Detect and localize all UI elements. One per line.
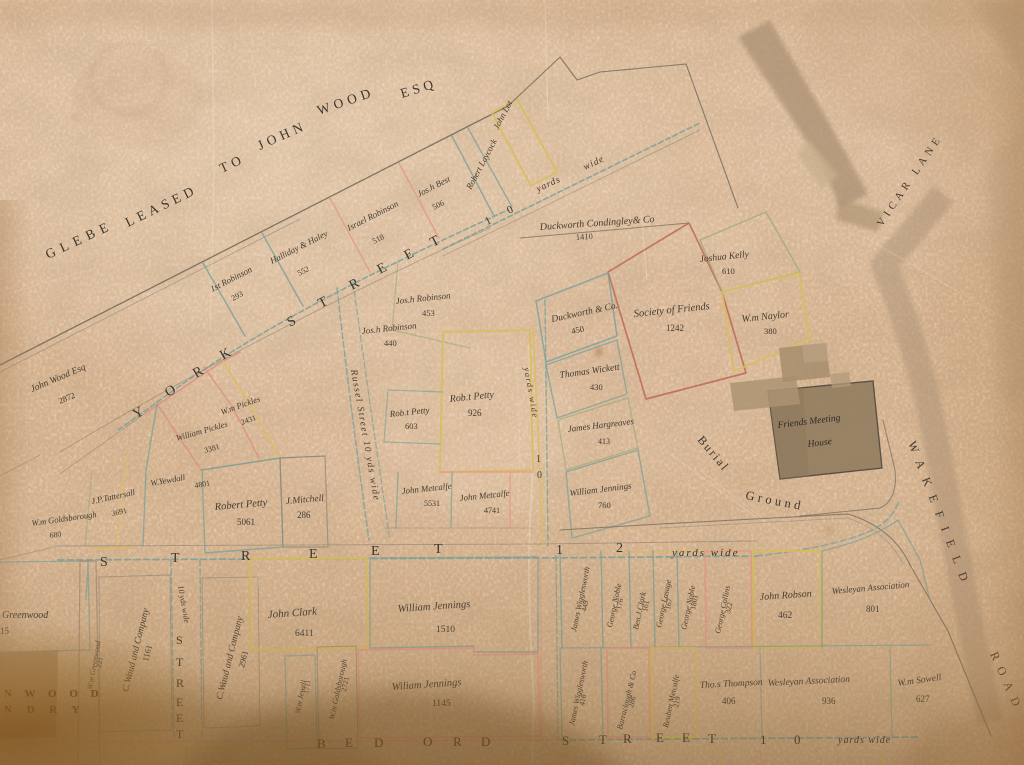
svg-text:453: 453 [422, 308, 435, 318]
svg-text:760: 760 [598, 500, 611, 510]
svg-text:1242: 1242 [666, 323, 684, 333]
svg-text:5061: 5061 [237, 517, 255, 527]
svg-text:603: 603 [405, 421, 418, 431]
svg-text:4741: 4741 [484, 506, 500, 515]
svg-text:430: 430 [590, 382, 603, 392]
svg-text:926: 926 [468, 408, 482, 418]
svg-text:1: 1 [536, 454, 541, 465]
svg-text:380: 380 [764, 326, 777, 336]
svg-text:440: 440 [384, 338, 397, 348]
svg-text:1410: 1410 [575, 231, 593, 242]
svg-text:5531: 5531 [424, 499, 440, 508]
svg-text:413: 413 [598, 437, 610, 446]
svg-text:286: 286 [297, 510, 311, 520]
svg-text:680: 680 [49, 529, 62, 540]
svg-text:610: 610 [722, 266, 735, 276]
svg-text:0: 0 [537, 470, 542, 481]
